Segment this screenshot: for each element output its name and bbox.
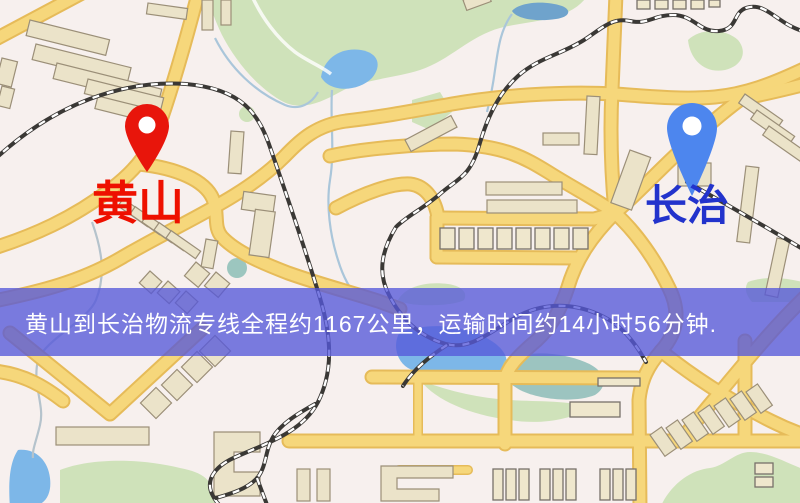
route-info-text: 黄山到长治物流专线全程约1167公里，运输时间约14小时56分钟.: [25, 305, 717, 339]
route-info-banner: 黄山到长治物流专线全程约1167公里，运输时间约14小时56分钟.: [0, 288, 800, 356]
map-canvas[interactable]: 黄山 长治: [0, 0, 800, 503]
origin-city-label: 黄山: [92, 178, 184, 229]
destination-city-label: 长治: [645, 183, 729, 230]
map-screenshot: 黄山 长治 黄山到长治物流专线全程约1167公里，运输时间约14小时56分钟.: [0, 0, 800, 503]
